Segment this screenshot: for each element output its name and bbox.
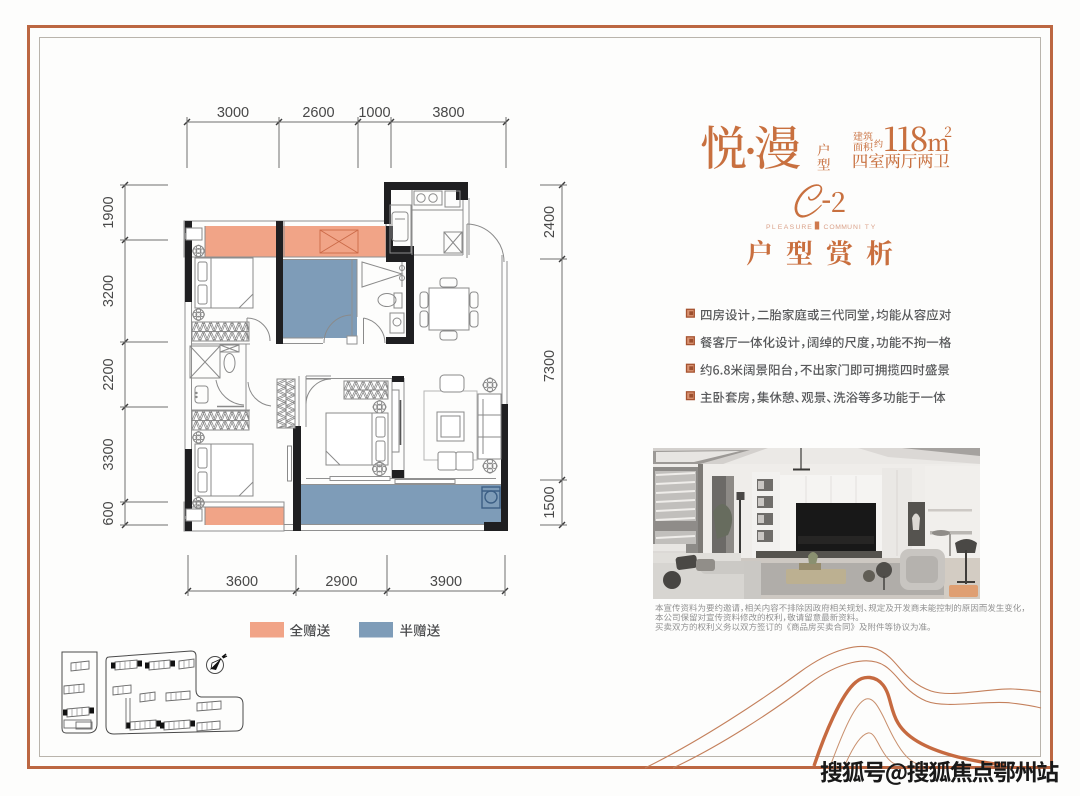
svg-text:7300: 7300	[542, 350, 558, 382]
svg-text:2900: 2900	[325, 574, 357, 590]
svg-text:E: E	[807, 224, 812, 231]
svg-text:3600: 3600	[226, 574, 258, 590]
svg-text:P: P	[766, 224, 771, 231]
svg-text:2400: 2400	[542, 206, 558, 238]
svg-text:2200: 2200	[101, 358, 117, 390]
svg-text:1000: 1000	[358, 105, 390, 121]
svg-text:3800: 3800	[432, 105, 464, 121]
svg-text:R: R	[801, 224, 806, 231]
svg-text:A: A	[784, 224, 789, 231]
svg-text:Y: Y	[871, 224, 876, 231]
svg-text:O: O	[829, 224, 834, 231]
svg-text:1900: 1900	[101, 196, 117, 228]
svg-text:U: U	[847, 224, 852, 231]
svg-text:T: T	[865, 224, 869, 231]
svg-text:600: 600	[101, 501, 117, 525]
svg-text:L: L	[772, 224, 776, 231]
svg-text:3300: 3300	[101, 438, 117, 470]
svg-text:S: S	[790, 224, 795, 231]
svg-text:3200: 3200	[101, 275, 117, 307]
svg-text:1500: 1500	[542, 486, 558, 518]
svg-text:C: C	[824, 224, 829, 231]
svg-text:3000: 3000	[217, 105, 249, 121]
svg-text:U: U	[796, 224, 801, 231]
svg-text:2600: 2600	[302, 105, 334, 121]
svg-text:I: I	[859, 224, 861, 231]
svg-text:E: E	[778, 224, 783, 231]
svg-text:3900: 3900	[430, 574, 462, 590]
svg-text:N: N	[853, 224, 858, 231]
